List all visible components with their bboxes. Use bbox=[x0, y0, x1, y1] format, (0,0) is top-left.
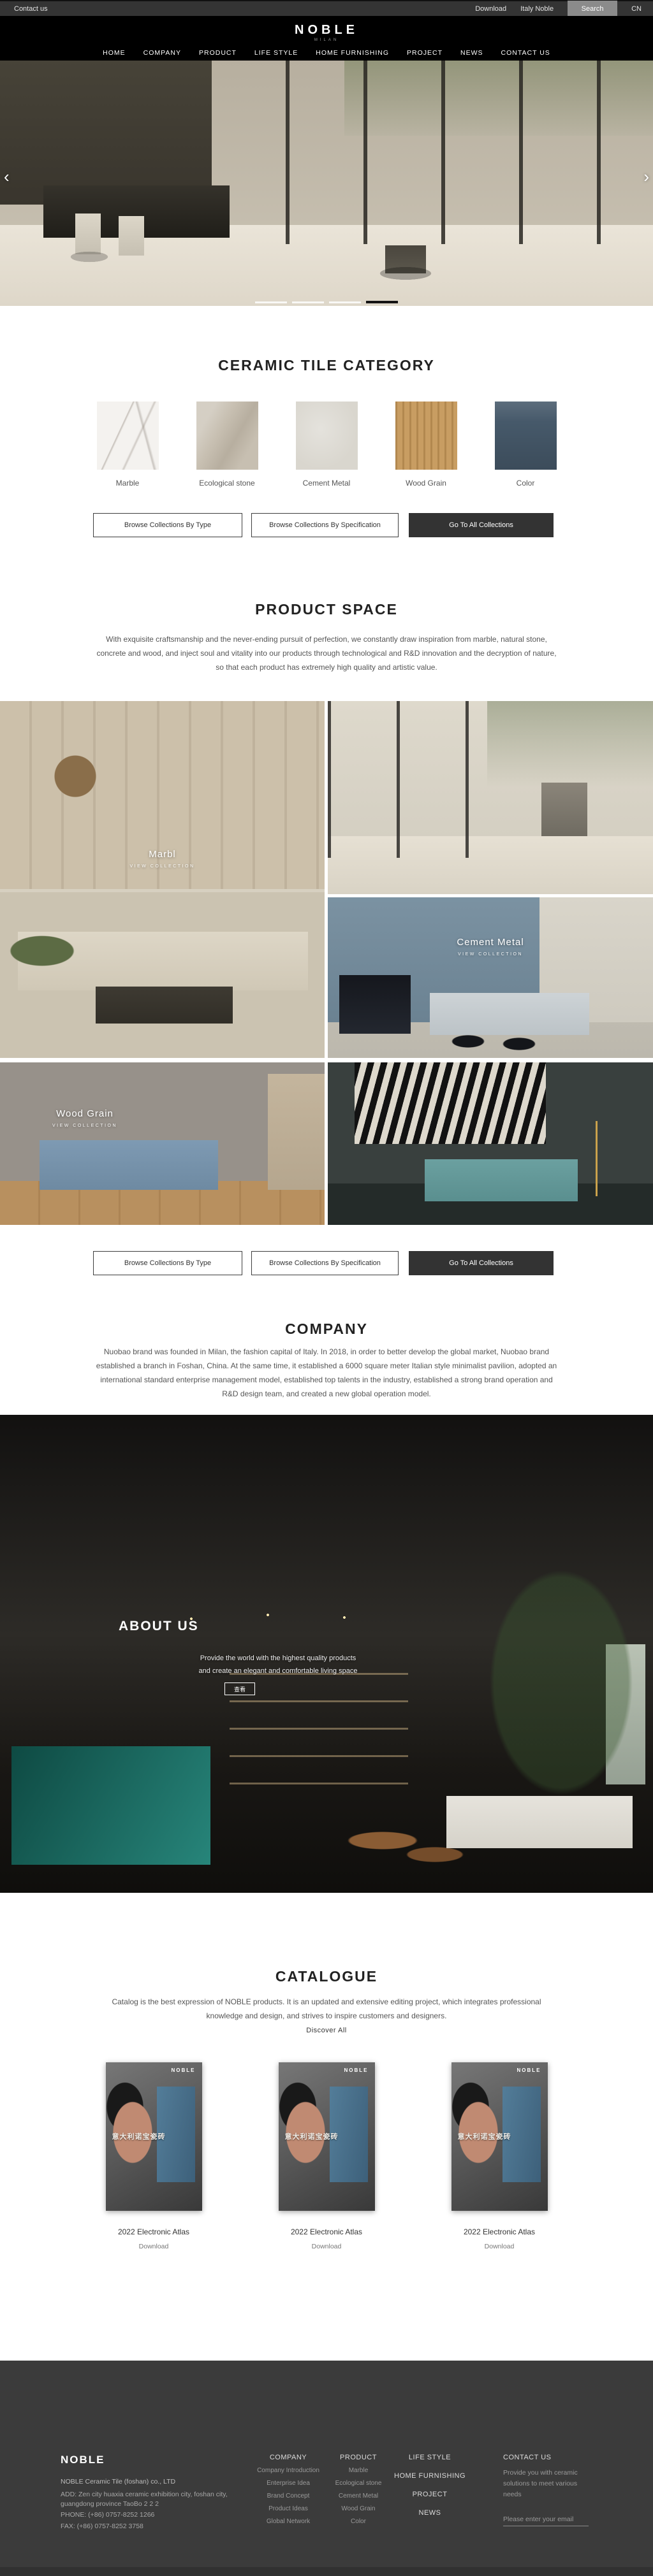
tile-swatch-wood-grain[interactable] bbox=[395, 402, 457, 470]
cover-brand-text: NOBLE bbox=[517, 2067, 541, 2073]
catalog-title-1: 2022 Electronic Atlas bbox=[90, 2227, 217, 2236]
tile-label-cement-metal: Cement Metal bbox=[277, 479, 376, 488]
collection-card-cement-metal[interactable]: Cement Metal VIEW COLLECTION bbox=[328, 897, 653, 1058]
carousel-pagination bbox=[0, 301, 653, 303]
category-title: CERAMIC TILE CATEGORY bbox=[0, 357, 653, 374]
tile-swatch-row: Marble Ecological stone Cement Metal Woo… bbox=[0, 402, 653, 488]
topbar: Contact us Download Italy Noble Search C… bbox=[0, 0, 653, 16]
catalog-cover-1[interactable]: NOBLE 意大利诺宝瓷砖 bbox=[106, 2062, 202, 2211]
tile-item-ecological-stone: Ecological stone bbox=[177, 402, 277, 488]
footer-link-brand-concept[interactable]: Brand Concept bbox=[253, 2493, 324, 2500]
collection-card-terrace[interactable] bbox=[328, 701, 653, 894]
cover-headline-text: 意大利诺宝瓷砖 bbox=[112, 2131, 166, 2141]
hero-carousel: ‹ › bbox=[0, 61, 653, 306]
nav-company[interactable]: COMPANY bbox=[143, 49, 181, 57]
catalogue-section: CATALOGUE Catalog is the best expression… bbox=[0, 1893, 653, 2361]
catalog-download-link-1[interactable]: Download bbox=[90, 2243, 217, 2250]
about-description: Provide the world with the highest quali… bbox=[119, 1652, 437, 1677]
footer-news-link[interactable]: NEWS bbox=[394, 2509, 466, 2517]
footer-column-sections: LIFE STYLE HOME FURNISHING PROJECT NEWS bbox=[394, 2454, 466, 2517]
catalogue-row: NOBLE 意大利诺宝瓷砖 2022 Electronic Atlas Down… bbox=[0, 2062, 653, 2250]
tile-item-cement-metal: Cement Metal bbox=[277, 402, 376, 488]
footer-company-header[interactable]: COMPANY bbox=[253, 2454, 324, 2461]
browse-by-type-button-2[interactable]: Browse Collections By Type bbox=[93, 1251, 242, 1275]
contact-us-link[interactable]: Contact us bbox=[14, 5, 48, 13]
logo[interactable]: NOBLE bbox=[0, 16, 653, 38]
footer-link-marble[interactable]: Marble bbox=[326, 2467, 390, 2474]
tile-swatch-ecological-stone[interactable] bbox=[196, 402, 258, 470]
browse-by-specification-button[interactable]: Browse Collections By Specification bbox=[251, 513, 399, 537]
slide-indicator-3[interactable] bbox=[329, 301, 361, 303]
all-collections-button[interactable]: Go To All Collections bbox=[409, 513, 554, 537]
page: Contact us Download Italy Noble Search C… bbox=[0, 0, 653, 2576]
tile-swatch-cement-metal[interactable] bbox=[296, 402, 358, 470]
hero-image bbox=[0, 61, 653, 306]
cover-brand-text: NOBLE bbox=[172, 2067, 196, 2073]
company-section: COMPANY Nuobao brand was founded in Mila… bbox=[0, 1306, 653, 1415]
footer-contact-header[interactable]: CONTACT US bbox=[503, 2454, 599, 2461]
collection-card-marble[interactable]: Marbl VIEW COLLECTION bbox=[0, 701, 325, 1058]
catalog-cover-2[interactable]: NOBLE 意大利诺宝瓷砖 bbox=[279, 2062, 375, 2211]
card-title: Marbl bbox=[0, 849, 325, 860]
footer-link-cement-metal[interactable]: Cement Metal bbox=[326, 2493, 390, 2500]
footer-product-header[interactable]: PRODUCT bbox=[326, 2454, 390, 2461]
browse-by-type-button[interactable]: Browse Collections By Type bbox=[93, 513, 242, 537]
tile-label-color: Color bbox=[476, 479, 575, 488]
browse-by-specification-button-2[interactable]: Browse Collections By Specification bbox=[251, 1251, 399, 1275]
nav-home[interactable]: HOME bbox=[103, 49, 126, 57]
slide-indicator-4-active[interactable] bbox=[366, 301, 398, 303]
all-collections-button-2[interactable]: Go To All Collections bbox=[409, 1251, 554, 1275]
footer-link-global-network[interactable]: Global Network bbox=[253, 2518, 324, 2525]
search-button[interactable]: Search bbox=[568, 1, 617, 17]
footer-column-company: COMPANY Company Introduction Enterprise … bbox=[253, 2454, 324, 2525]
about-view-button[interactable]: 查看 bbox=[224, 1682, 255, 1695]
tile-swatch-color[interactable] bbox=[495, 402, 557, 470]
product-space-title: PRODUCT SPACE bbox=[0, 601, 653, 618]
nav-news[interactable]: NEWS bbox=[460, 49, 483, 57]
category-section: CERAMIC TILE CATEGORY Marble Ecological … bbox=[0, 306, 653, 574]
main-nav: HOME COMPANY PRODUCT LIFE STYLE HOME FUR… bbox=[0, 49, 653, 57]
prev-slide-arrow[interactable]: ‹ bbox=[4, 168, 10, 185]
nav-life-style[interactable]: LIFE STYLE bbox=[254, 49, 298, 57]
tile-swatch-marble[interactable] bbox=[97, 402, 159, 470]
company-description: Nuobao brand was founded in Milan, the f… bbox=[94, 1345, 559, 1401]
about-title: ABOUT US bbox=[119, 1619, 199, 1634]
footer-column-contact: CONTACT US Provide you with ceramic solu… bbox=[503, 2454, 599, 2500]
download-link[interactable]: Download bbox=[475, 5, 506, 13]
cover-headline-text: 意大利诺宝瓷砖 bbox=[285, 2131, 339, 2141]
collection-card-marble-label: Marbl VIEW COLLECTION bbox=[0, 849, 325, 869]
collection-card-wood-label: Wood Grain VIEW COLLECTION bbox=[37, 1108, 133, 1128]
slide-indicator-2[interactable] bbox=[292, 301, 324, 303]
footer-link-ecological-stone[interactable]: Ecological stone bbox=[326, 2480, 390, 2487]
footer-home-furnishing-link[interactable]: HOME FURNISHING bbox=[394, 2472, 466, 2480]
slide-indicator-1[interactable] bbox=[255, 301, 287, 303]
collection-card-wood-grain[interactable]: Wood Grain VIEW COLLECTION bbox=[0, 1062, 325, 1225]
footer-contact-text: Provide you with ceramic solutions to me… bbox=[503, 2468, 587, 2500]
catalogue-title: CATALOGUE bbox=[0, 1968, 653, 1985]
language-toggle[interactable]: CN bbox=[631, 5, 642, 13]
catalog-title-2: 2022 Electronic Atlas bbox=[263, 2227, 390, 2236]
tile-label-marble: Marble bbox=[78, 479, 177, 488]
footer-bottom-strip bbox=[0, 2567, 653, 2576]
catalog-title-3: 2022 Electronic Atlas bbox=[436, 2227, 563, 2236]
nav-contact-us[interactable]: CONTACT US bbox=[501, 49, 550, 57]
product-space-section: PRODUCT SPACE With exquisite craftsmansh… bbox=[0, 574, 653, 1306]
about-section: ABOUT US Provide the world with the high… bbox=[0, 1415, 653, 1893]
tile-item-wood-grain: Wood Grain bbox=[376, 402, 476, 488]
about-line-2: and create an elegant and comfortable li… bbox=[119, 1665, 437, 1677]
collection-card-cement-label: Cement Metal VIEW COLLECTION bbox=[328, 937, 653, 957]
footer-fax: FAX: (+86) 0757-8252 3758 bbox=[61, 2522, 143, 2530]
footer-address: ADD: Zen city huaxia ceramic exhibition … bbox=[61, 2490, 234, 2509]
cover-headline-text: 意大利诺宝瓷砖 bbox=[458, 2131, 511, 2141]
card-title: Wood Grain bbox=[37, 1108, 133, 1119]
discover-all-link[interactable]: Discover All bbox=[0, 2027, 653, 2034]
email-input[interactable] bbox=[503, 2512, 589, 2526]
next-slide-arrow[interactable]: › bbox=[643, 168, 649, 185]
footer-link-wood-grain[interactable]: Wood Grain bbox=[326, 2505, 390, 2512]
about-line-1: Provide the world with the highest quali… bbox=[119, 1652, 437, 1665]
catalog-cover-3[interactable]: NOBLE 意大利诺宝瓷砖 bbox=[451, 2062, 548, 2211]
logo-subtitle: MILAN bbox=[0, 38, 653, 42]
catalogue-item-2: NOBLE 意大利诺宝瓷砖 2022 Electronic Atlas Down… bbox=[263, 2062, 390, 2250]
site-header: NOBLE MILAN HOME COMPANY PRODUCT LIFE ST… bbox=[0, 16, 653, 61]
footer-link-product-ideas[interactable]: Product Ideas bbox=[253, 2505, 324, 2512]
footer-phone: PHONE: (+86) 0757-8252 1266 bbox=[61, 2511, 154, 2519]
catalog-download-link-3[interactable]: Download bbox=[436, 2243, 563, 2250]
card-view-collection: VIEW COLLECTION bbox=[0, 864, 325, 869]
collection-card-dark-room[interactable] bbox=[328, 1062, 653, 1225]
catalogue-item-1: NOBLE 意大利诺宝瓷砖 2022 Electronic Atlas Down… bbox=[90, 2062, 217, 2250]
footer-logo: NOBLE bbox=[61, 2454, 105, 2466]
footer-link-color[interactable]: Color bbox=[326, 2518, 390, 2525]
tile-label-ecological-stone: Ecological stone bbox=[177, 479, 277, 488]
catalogue-description: Catalog is the best expression of NOBLE … bbox=[94, 1995, 559, 2023]
footer: NOBLE NOBLE Ceramic Tile (foshan) co., L… bbox=[0, 2361, 653, 2576]
topbar-right: Download Italy Noble Search CN bbox=[475, 1, 642, 16]
tile-label-wood-grain: Wood Grain bbox=[376, 479, 476, 488]
company-title: COMPANY bbox=[0, 1321, 653, 1338]
nav-project[interactable]: PROJECT bbox=[407, 49, 443, 57]
footer-column-product: PRODUCT Marble Ecological stone Cement M… bbox=[326, 2454, 390, 2525]
footer-link-enterprise-idea[interactable]: Enterprise Idea bbox=[253, 2480, 324, 2487]
cover-brand-text: NOBLE bbox=[344, 2067, 369, 2073]
italy-noble-link[interactable]: Italy Noble bbox=[520, 5, 554, 13]
card-view-collection: VIEW COLLECTION bbox=[37, 1124, 133, 1128]
footer-project-link[interactable]: PROJECT bbox=[394, 2491, 466, 2498]
card-title: Cement Metal bbox=[328, 937, 653, 948]
product-space-description: With exquisite craftsmanship and the nev… bbox=[94, 632, 559, 674]
nav-home-furnishing[interactable]: HOME FURNISHING bbox=[316, 49, 389, 57]
catalog-download-link-2[interactable]: Download bbox=[263, 2243, 390, 2250]
footer-company-name: NOBLE Ceramic Tile (foshan) co., LTD bbox=[61, 2478, 175, 2486]
footer-life-style-link[interactable]: LIFE STYLE bbox=[394, 2454, 466, 2461]
tile-item-marble: Marble bbox=[78, 402, 177, 488]
nav-product[interactable]: PRODUCT bbox=[199, 49, 237, 57]
footer-link-company-introduction[interactable]: Company Introduction bbox=[253, 2467, 324, 2474]
card-view-collection: VIEW COLLECTION bbox=[328, 952, 653, 957]
tile-item-color: Color bbox=[476, 402, 575, 488]
catalogue-item-3: NOBLE 意大利诺宝瓷砖 2022 Electronic Atlas Down… bbox=[436, 2062, 563, 2250]
